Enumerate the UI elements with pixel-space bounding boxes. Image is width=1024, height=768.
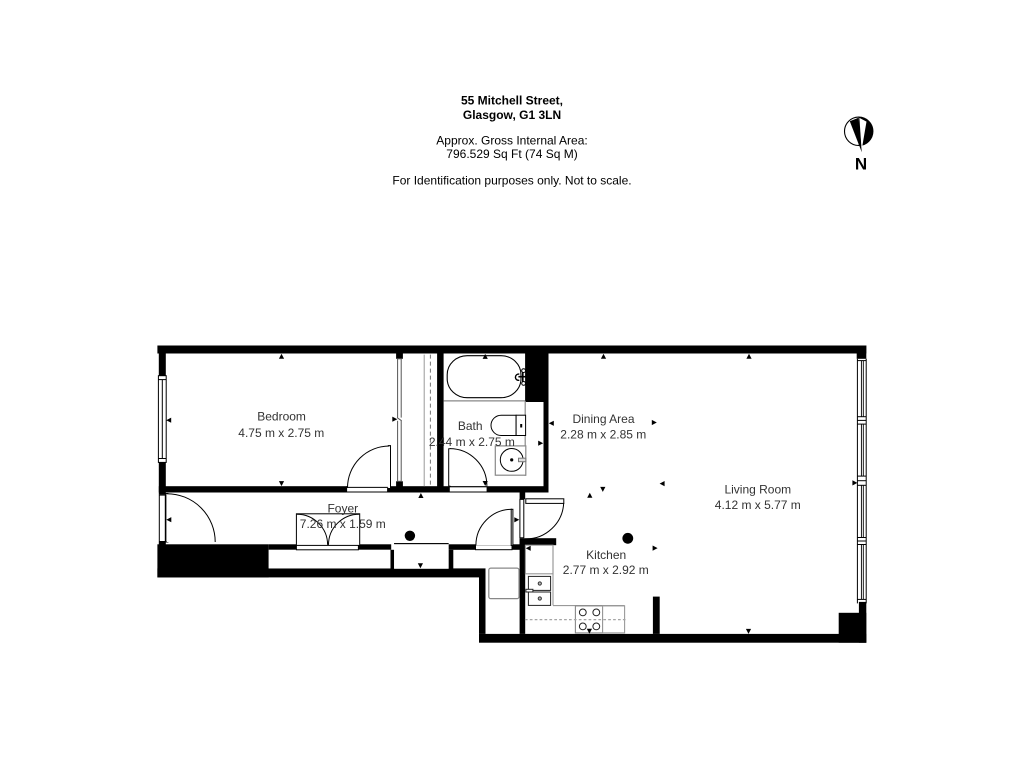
- svg-text:Living Room: Living Room: [724, 483, 791, 497]
- svg-text:N: N: [855, 155, 867, 174]
- svg-text:Bedroom: Bedroom: [257, 409, 306, 423]
- svg-text:Bath: Bath: [458, 419, 483, 433]
- svg-text:For Identification purposes on: For Identification purposes only. Not to…: [392, 174, 631, 188]
- svg-text:Dining Area: Dining Area: [572, 412, 634, 426]
- svg-text:4.75 m x 2.75 m: 4.75 m x 2.75 m: [238, 426, 324, 440]
- svg-text:2.28 m x 2.85 m: 2.28 m x 2.85 m: [560, 428, 646, 442]
- svg-text:Glasgow, G1 3LN: Glasgow, G1 3LN: [463, 108, 561, 122]
- svg-text:Kitchen: Kitchen: [586, 548, 626, 562]
- svg-text:55 Mitchell Street,: 55 Mitchell Street,: [461, 93, 563, 107]
- svg-text:7.26 m x 1.59 m: 7.26 m x 1.59 m: [300, 517, 386, 531]
- svg-text:2.77 m x 2.92 m: 2.77 m x 2.92 m: [563, 563, 649, 577]
- svg-text:Approx. Gross Internal Area:: Approx. Gross Internal Area:: [436, 133, 587, 147]
- svg-text:Foyer: Foyer: [327, 502, 358, 516]
- svg-text:2.44 m x 2.75 m: 2.44 m x 2.75 m: [429, 435, 515, 449]
- svg-text:796.529 Sq Ft (74 Sq M): 796.529 Sq Ft (74 Sq M): [446, 147, 577, 161]
- svg-text:4.12 m x 5.77 m: 4.12 m x 5.77 m: [715, 498, 801, 512]
